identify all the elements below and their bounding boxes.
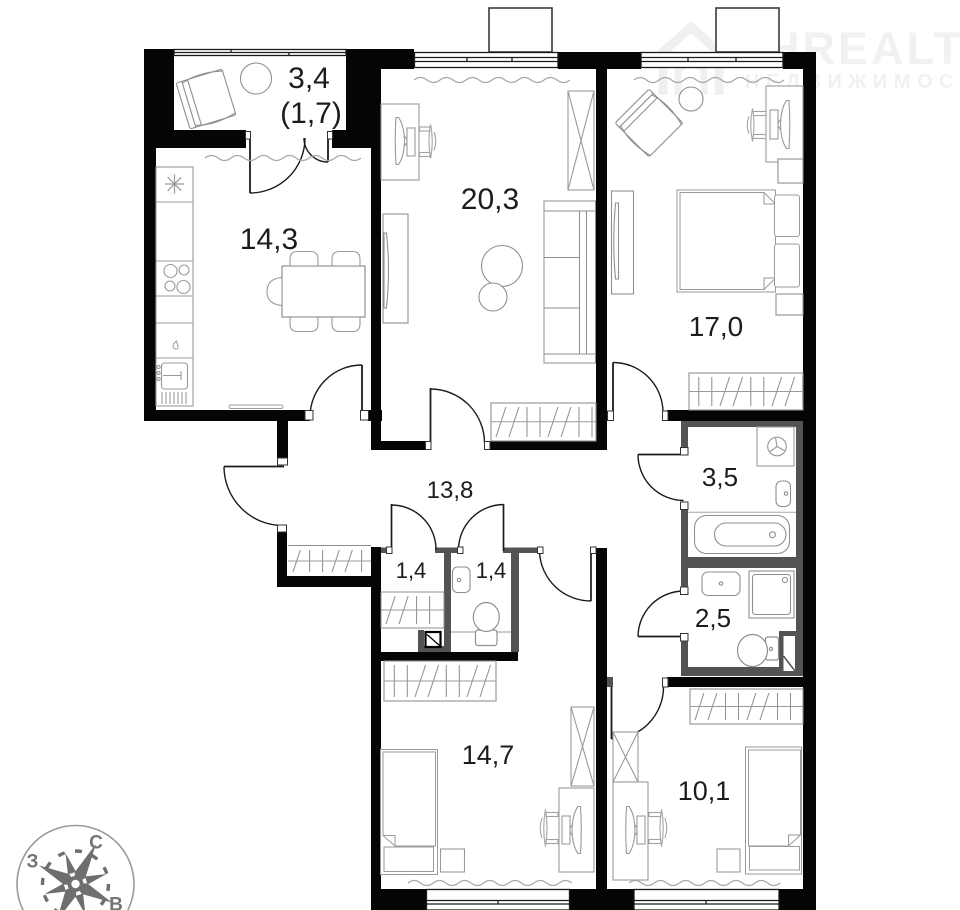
svg-text:20,3: 20,3 (461, 183, 519, 216)
svg-text:З: З (27, 852, 39, 873)
svg-text:3,5: 3,5 (702, 462, 738, 492)
svg-text:В: В (109, 895, 123, 910)
svg-text:3,4: 3,4 (288, 62, 330, 95)
svg-text:(1,7): (1,7) (280, 97, 342, 130)
svg-text:14,3: 14,3 (240, 223, 298, 256)
svg-text:14,7: 14,7 (462, 740, 515, 770)
svg-text:17,0: 17,0 (689, 311, 744, 342)
svg-text:10,1: 10,1 (678, 776, 731, 806)
svg-text:1,4: 1,4 (396, 558, 427, 583)
svg-text:С: С (89, 833, 103, 854)
svg-text:13,8: 13,8 (427, 477, 474, 504)
svg-text:1,4: 1,4 (476, 558, 507, 583)
svg-text:2,5: 2,5 (695, 603, 731, 633)
